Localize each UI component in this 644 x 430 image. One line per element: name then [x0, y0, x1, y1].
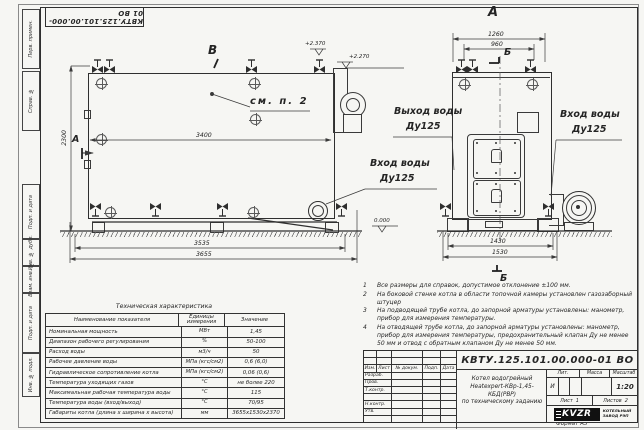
note-item: 2На боковой стенке котла в области топоч…	[363, 291, 635, 307]
valve-icon	[104, 58, 115, 73]
lit-mass-scale-block: Лит. Масса Масштаб И 1:20 Лист1 Листов2 …	[546, 369, 638, 422]
valve-icon	[467, 58, 478, 73]
tech-row: Диапазон рабочего регулирования%50-100	[46, 338, 284, 348]
flue-fan-housing	[343, 114, 362, 133]
position-mark-icon	[96, 78, 107, 89]
side-fitting	[84, 110, 91, 119]
tech-row: Рабочее давление водыМПа (кгс/см2)0,6 (6…	[46, 358, 284, 368]
margin-box-sprav-no: Справ. №	[22, 71, 40, 131]
margin-box-podp-data-2: Подп. и дата	[22, 292, 40, 354]
company-cell: KVZR КОТЕЛЬНЫЙ ЗАВОД РЭП	[547, 406, 638, 422]
tech-row: Температура уходящих газов°Сне более 220	[46, 378, 284, 388]
position-mark-icon	[527, 79, 538, 90]
front-inlet-label-line2: Ду125	[572, 124, 606, 135]
flue-fan-inner-icon	[346, 98, 360, 112]
position-mark-icon	[248, 207, 259, 218]
drain-valve-icon	[90, 203, 101, 218]
sight-glass	[517, 112, 539, 133]
dim-3655: 3655	[196, 251, 212, 258]
sheets-row: Лист1 Листов2	[547, 396, 638, 406]
tech-table-header-row: Наименование показателя Единицы измерени…	[46, 314, 284, 327]
front-inlet-label-line1: Вход воды	[560, 109, 620, 120]
dim-2300: 2300	[61, 130, 68, 146]
mass-value	[582, 378, 612, 395]
scale-value: 1:20	[612, 378, 638, 395]
base-skid	[447, 218, 469, 232]
top-rotated-doc-number: КВТУ.125.101.00.000-01 ВО	[45, 7, 144, 27]
drain-valve-icon	[440, 203, 451, 218]
position-mark-icon	[250, 114, 261, 125]
view-label-a: А	[488, 5, 498, 20]
drain-valve-icon	[217, 203, 228, 218]
valve-icon	[92, 58, 103, 73]
elevation-2370: +2.370	[305, 41, 325, 47]
position-mark-icon	[105, 207, 116, 218]
lit-value: И	[547, 378, 559, 395]
valve-icon	[456, 58, 467, 73]
valve-icon	[525, 58, 536, 73]
doc-number: КВТУ.125.101.00.000-01 ВО	[456, 351, 638, 370]
notes-list: 1Все размеры для справок, допустимое отк…	[363, 282, 635, 348]
sig-row-nkontr: Н.контр.	[364, 401, 456, 408]
product-name-cell: Котел водогрейный Heatexpert-КВр-1,45-КБ…	[456, 369, 547, 429]
valve-icon	[246, 58, 257, 73]
product-name-line: Котел водогрейный	[472, 376, 533, 384]
door-bolts	[476, 142, 478, 144]
section-label-b-top: Б	[504, 47, 511, 58]
dim-1260: 1260	[488, 31, 504, 38]
door-handle-icon	[491, 149, 502, 163]
ground-hatch	[60, 232, 362, 237]
sig-row-utv: Утв.	[364, 409, 456, 416]
product-name-line: Heatexpert-КВр-1,45-КБД(РВР)	[457, 384, 547, 400]
drain-valve-icon	[150, 203, 161, 218]
note-item: 1Все размеры для справок, допустимое отк…	[363, 282, 635, 290]
kvzr-logo: KVZR	[554, 408, 600, 421]
ground-hatch	[437, 232, 612, 237]
front-top-seam	[452, 77, 550, 78]
position-mark-icon	[459, 79, 470, 90]
tech-row: Габариты котла (длина х ширина х высота)…	[46, 409, 284, 418]
sig-row-razrab: Разраб.	[364, 373, 456, 380]
tech-table: Наименование показателя Единицы измерени…	[45, 313, 285, 419]
product-name-line: по техническому заданию	[462, 399, 543, 407]
elevation-2270: +2.270	[349, 54, 369, 60]
note-item: 4На отводящей трубе котла, до запорной а…	[363, 324, 635, 347]
title-block: Изм. Лист № докум. Подп. Дата Разраб. Пр…	[363, 350, 638, 423]
margin-box-vzam-inv: Взам. инв. №	[22, 265, 40, 294]
dim-3535: 3535	[194, 240, 210, 247]
position-mark-icon	[96, 134, 107, 145]
elevation-0000: 0.000	[374, 218, 390, 224]
drawing-sheet: Перв. примен. Справ. № Подп. и дата Инв.…	[0, 0, 644, 430]
dim-960: 960	[491, 41, 503, 48]
section-label-b-bottom: Б	[500, 273, 507, 284]
ash-drawer	[467, 219, 539, 231]
callout-see-note-2: см. п. 2	[250, 96, 309, 107]
sig-row-tkontr: Т.контр.	[364, 387, 456, 394]
sig-row-empty	[364, 416, 456, 422]
tech-row: Расход водым3/ч50	[46, 348, 284, 358]
section-arrow-label-a: А	[72, 134, 79, 145]
change-row	[364, 358, 456, 365]
drain-valve-icon	[543, 203, 554, 218]
note-item: 3На подводящей трубе котла, до запорной …	[363, 307, 635, 323]
water-inlet-flange-inner	[312, 205, 324, 217]
outlet-label-line2: Ду125	[406, 121, 440, 132]
boiler-side-body	[88, 73, 335, 219]
position-mark-icon	[249, 78, 260, 89]
change-row	[364, 351, 456, 358]
tech-row: Максимальная рабочая температура воды°С1…	[46, 388, 284, 398]
margin-box-podp-data-1: Подп. и дата	[22, 184, 40, 240]
ash-drawer-handle	[485, 221, 503, 228]
valve-icon	[314, 58, 325, 73]
tech-row: Гидравлическое сопротивление котлаМПа (к…	[46, 368, 284, 378]
margin-box-perv-primen: Перв. примен.	[22, 9, 40, 69]
door-bolts	[476, 183, 478, 185]
view-label-b: В	[208, 43, 217, 57]
margin-box-inv-podl: Инв. № подл.	[22, 352, 40, 397]
lit-values-row: И 1:20	[547, 378, 638, 396]
sig-row-empty	[364, 394, 456, 401]
sig-header-row: Изм. Лист № докум. Подп. Дата	[364, 365, 456, 372]
dim-1530: 1530	[492, 249, 508, 256]
side-fitting	[84, 160, 91, 169]
door-handle-icon	[491, 189, 502, 203]
tech-row: Температура воды (вход/выход)°С70/95	[46, 399, 284, 409]
dim-1430: 1430	[490, 238, 506, 245]
outlet-label-line1: Выход воды	[394, 106, 462, 117]
sig-row-prov: Пров.	[364, 380, 456, 387]
side-inlet-label-line2: Ду125	[380, 173, 414, 184]
lit-header-row: Лит. Масса Масштаб	[547, 369, 638, 378]
tech-table-title: Техническая характеристика	[45, 303, 283, 310]
dim-3400: 3400	[196, 132, 212, 139]
tech-row: Номинальная мощностьМВт1,45	[46, 327, 284, 337]
drain-valve-icon	[336, 203, 347, 218]
company-name: КОТЕЛЬНЫЙ ЗАВОД РЭП	[603, 409, 632, 419]
blower-base	[564, 222, 594, 231]
side-inlet-label-line1: Вход воды	[370, 158, 430, 169]
title-block-signature-table: Изм. Лист № докум. Подп. Дата Разраб. Пр…	[364, 351, 456, 422]
blower-hub	[576, 205, 580, 209]
